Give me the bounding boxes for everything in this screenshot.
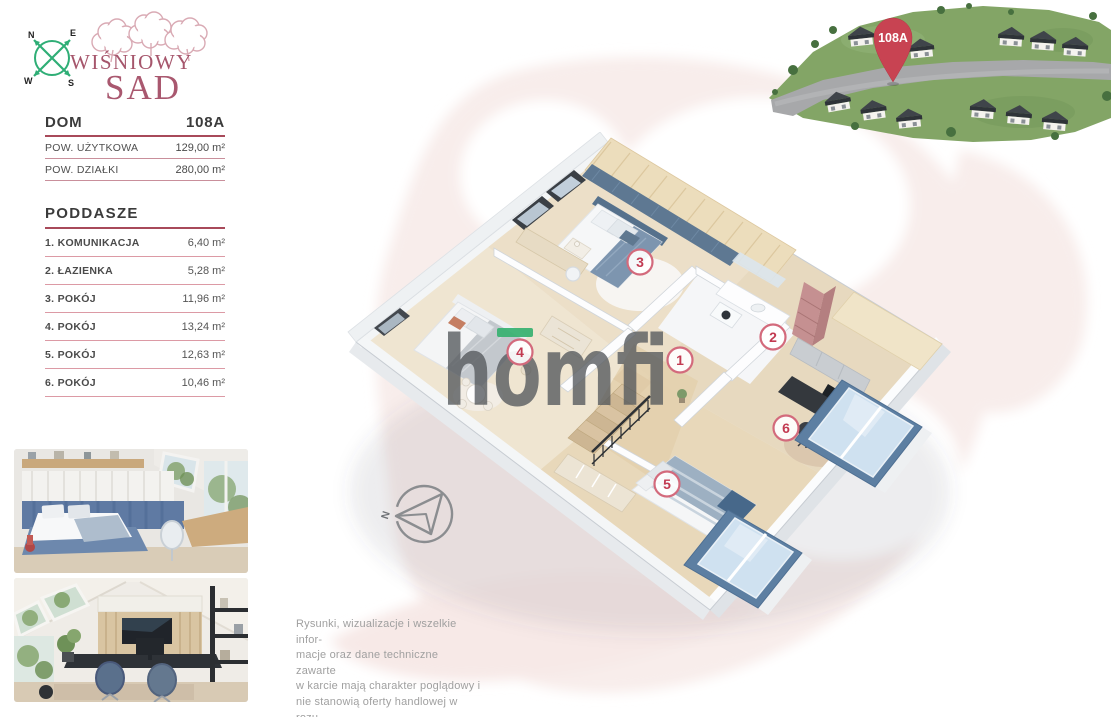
pin-label: 108A [878,31,908,45]
room-area: 10,46 m² [182,377,225,389]
room-area: 6,40 m² [188,237,225,249]
homfi-text: homfi [442,316,669,428]
svg-text:2: 2 [769,329,777,345]
room-badge-6: 6 [774,416,799,441]
homfi-watermark: homfi [442,316,669,428]
room-area: 13,24 m² [182,321,225,333]
floor-plan-3d: N homfi 1 2 3 4 [330,132,990,652]
house-info-header: DOM 108A [45,114,225,137]
brand-logo: N E W S WIŚNIOWY SAD [18,6,230,110]
svg-text:3: 3 [636,254,644,270]
room-badge-5: 5 [655,472,680,497]
area-row-value: 280,00 m² [175,164,225,176]
room-badge-4: 4 [508,340,533,365]
room-label: 5. POKÓJ [45,349,96,361]
svg-text:4: 4 [516,344,524,360]
compass-w: W [24,76,33,86]
room-badge-2: 2 [761,325,786,350]
house-label: DOM [45,114,82,131]
compass-s: S [68,78,74,88]
room-label: 6. POKÓJ [45,377,96,389]
svg-text:1: 1 [676,352,684,368]
photo-office [14,578,248,702]
room-list: PODDASZE 1. KOMUNIKACJA 6,40 m² 2. ŁAZIE… [45,205,225,397]
house-number: 108A [186,114,225,131]
room-badge-3: 3 [628,250,653,275]
room-badge-1: 1 [668,348,693,373]
room-row: 2. ŁAZIENKA 5,28 m² [45,257,225,285]
room-row: 6. POKÓJ 10,46 m² [45,369,225,397]
room-area: 5,28 m² [188,265,225,277]
compass-rose-icon: N E W S [24,28,76,88]
room-row: 4. POKÓJ 13,24 m² [45,313,225,341]
compass-n: N [28,30,35,40]
area-row-label: POW. DZIAŁKI [45,164,119,176]
legal-disclaimer: Rysunki, wizualizacje i wszelkie infor-m… [296,617,481,717]
svg-text:5: 5 [663,476,671,492]
photo-bedroom [14,449,248,573]
floor-title: PODDASZE [45,205,225,229]
compass-e: E [70,28,76,38]
room-area: 12,63 m² [182,349,225,361]
area-row-label: POW. UŻYTKOWA [45,142,138,154]
room-label: 3. POKÓJ [45,293,96,305]
brand-name-bottom: SAD [78,68,208,108]
room-area: 11,96 m² [182,293,225,305]
area-row: POW. UŻYTKOWA 129,00 m² [45,137,225,159]
room-label: 4. POKÓJ [45,321,96,333]
house-info-table: DOM 108A POW. UŻYTKOWA 129,00 m² POW. DZ… [45,114,225,181]
property-card: N E W S WIŚNIOWY SAD DOM 108A POW. UŻYTK… [0,0,1111,717]
room-label: 1. KOMUNIKACJA [45,237,140,249]
site-plan-render: 108A [763,0,1111,142]
room-row: 3. POKÓJ 11,96 m² [45,285,225,313]
room-label: 2. ŁAZIENKA [45,265,113,277]
area-row-value: 129,00 m² [175,142,225,154]
area-row: POW. DZIAŁKI 280,00 m² [45,159,225,181]
room-row: 5. POKÓJ 12,63 m² [45,341,225,369]
room-row: 1. KOMUNIKACJA 6,40 m² [45,229,225,257]
svg-text:6: 6 [782,420,790,436]
